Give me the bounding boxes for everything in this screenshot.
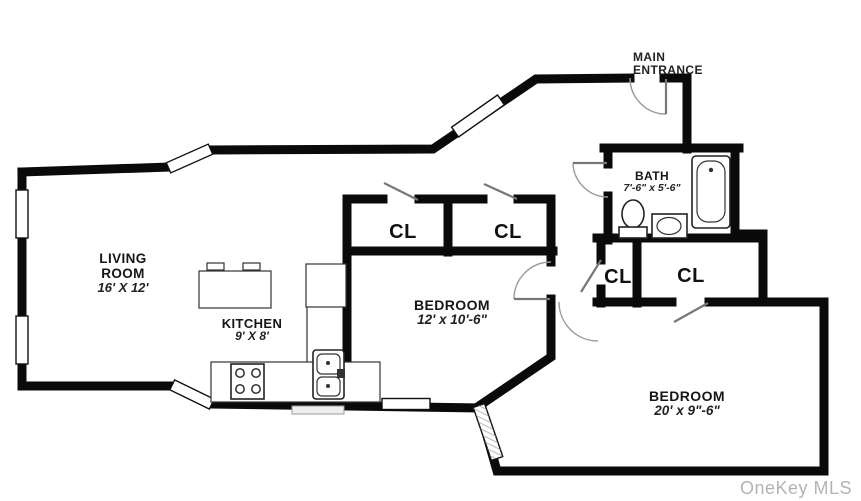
window-left-upper xyxy=(16,190,28,238)
floor-plan-drawing: LIVING ROOM 16' X 12' KITCHEN 9' X 8' CL… xyxy=(0,0,861,501)
kitchen-island-icon xyxy=(199,263,271,308)
closet1-label: CL xyxy=(389,221,417,243)
exterior-ledge xyxy=(292,406,344,414)
bedroom1-label: BEDROOM xyxy=(414,297,490,313)
window-top-diagonal xyxy=(452,95,505,137)
bath-label: BATH xyxy=(635,169,669,183)
bedroom1-dims: 12' x 10'-6" xyxy=(417,312,487,327)
window-bedroom1-bottom xyxy=(382,399,430,410)
floor-plan-page: LIVING ROOM 16' X 12' KITCHEN 9' X 8' CL… xyxy=(0,0,861,501)
kitchen-dims: 9' X 8' xyxy=(235,329,270,343)
bedroom1-right-wall-lower xyxy=(479,299,551,406)
exterior-wall-entrance-right xyxy=(664,78,687,149)
bedroom2-hall-door-arc xyxy=(559,302,598,341)
stove-icon xyxy=(231,364,264,399)
main-entrance-label-line2: ENTRANCE xyxy=(633,63,703,77)
exterior-wall-top-left xyxy=(22,78,630,172)
hall-closet-large-door-leaf xyxy=(674,303,708,322)
living-room-label-line2: ROOM xyxy=(101,266,145,281)
closet2-door-leaf xyxy=(484,184,517,199)
window-top-left-diagonal xyxy=(166,144,212,173)
refrigerator-icon xyxy=(306,264,346,362)
hall-closet-large-label: CL xyxy=(677,265,705,287)
bath-dims: 7'-6" x 5'-6" xyxy=(624,182,682,194)
closet1-door-leaf xyxy=(384,183,418,200)
main-entrance-label-line1: MAIN xyxy=(633,50,665,64)
window-bottom-left-diagonal xyxy=(170,380,214,409)
closet2-label: CL xyxy=(494,221,522,243)
bath-door-arc xyxy=(573,163,608,197)
living-room-dims: 16' X 12' xyxy=(98,280,150,295)
bedroom2-label: BEDROOM xyxy=(649,388,725,404)
kitchen-sink-icon xyxy=(313,350,345,399)
living-room-label-line1: LIVING xyxy=(99,251,146,266)
bedroom2-dims: 20' x 9"-6" xyxy=(653,403,720,418)
bathtub-icon xyxy=(692,156,730,228)
main-entrance-door-arc xyxy=(630,78,666,114)
window-left-lower xyxy=(16,316,28,364)
bath-sink-icon xyxy=(652,214,687,238)
bedroom1-door-arc xyxy=(514,262,551,299)
watermark: OneKey MLS xyxy=(740,478,852,498)
hall-closet-small-label: CL xyxy=(604,266,632,288)
toilet-icon xyxy=(619,200,647,238)
